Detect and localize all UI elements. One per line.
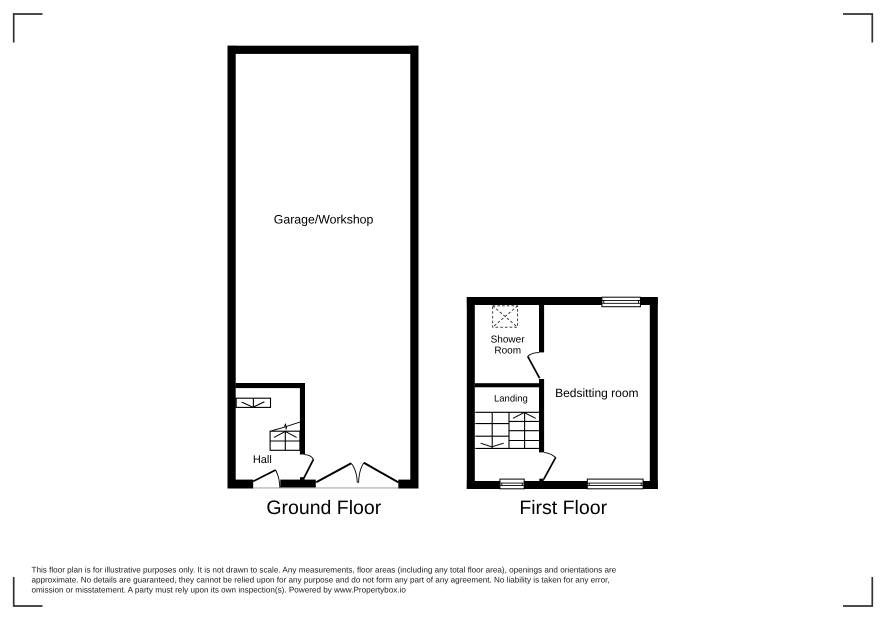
svg-text:approximate. No details are gu: approximate. No details are guaranteed, …: [32, 576, 610, 585]
svg-text:This floor plan is for illustr: This floor plan is for illustrative purp…: [32, 565, 617, 574]
svg-text:Landing: Landing: [494, 394, 528, 405]
svg-text:Bedsitting room: Bedsitting room: [555, 386, 638, 400]
svg-text:First Floor: First Floor: [519, 497, 607, 519]
svg-text:Ground Floor: Ground Floor: [266, 497, 381, 519]
svg-text:Room: Room: [494, 345, 521, 356]
svg-text:Garage/Workshop: Garage/Workshop: [274, 212, 374, 226]
svg-text:Hall: Hall: [253, 454, 272, 466]
svg-text:omission or misstatement. A pa: omission or misstatement. A party must r…: [32, 586, 407, 595]
svg-text:Shower: Shower: [491, 335, 526, 346]
